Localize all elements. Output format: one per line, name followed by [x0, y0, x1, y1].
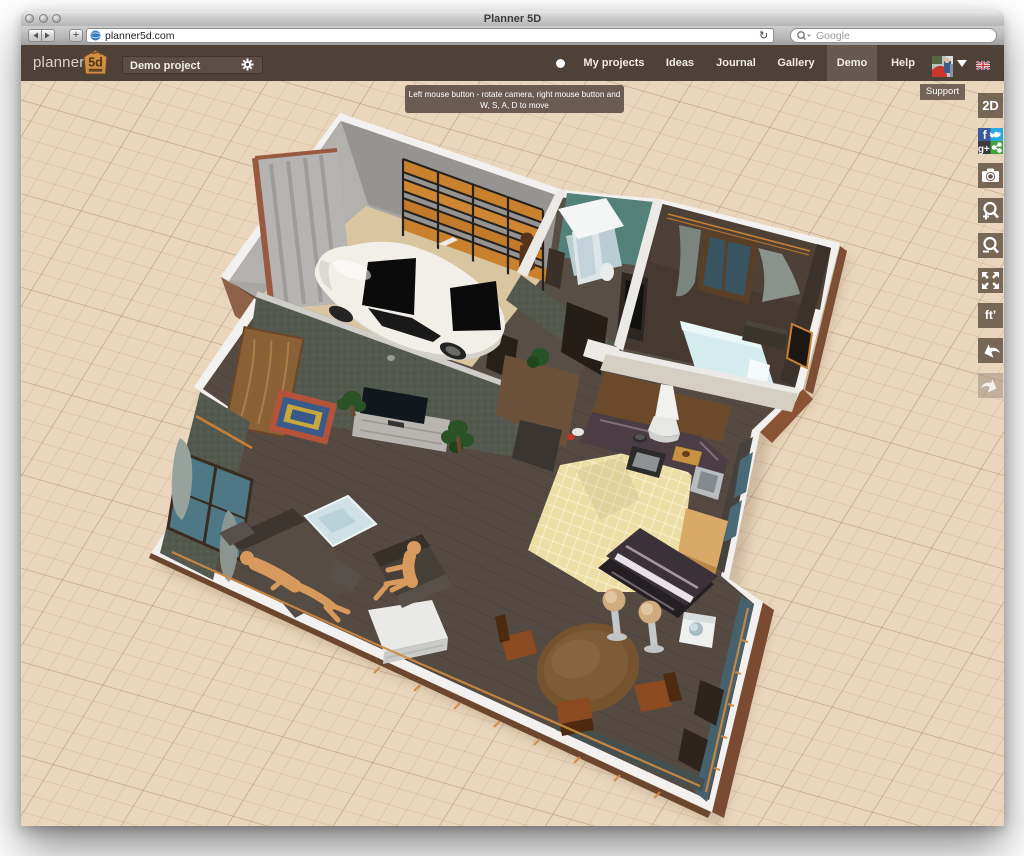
svg-text:5d: 5d — [88, 55, 103, 69]
svg-text:g+: g+ — [978, 144, 990, 154]
